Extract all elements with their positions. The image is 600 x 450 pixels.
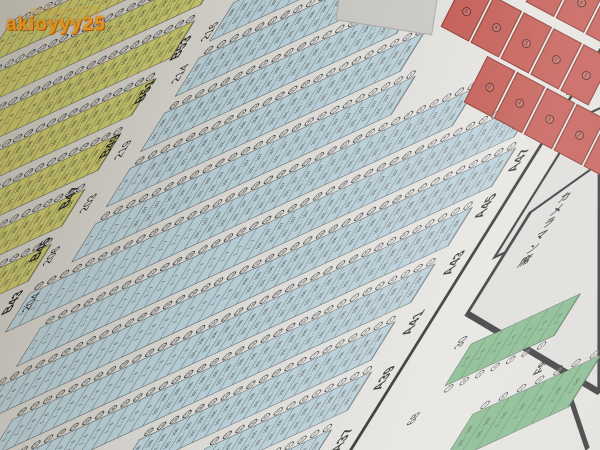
circled-column-number: 3 bbox=[543, 112, 555, 124]
circled-column-number: 5 bbox=[484, 80, 496, 92]
circled-column-number: 4 bbox=[575, 0, 587, 8]
seat-cell: 101 ~ 108 bbox=[189, 0, 222, 10]
seat-range-text: 101 ~ 106 bbox=[125, 444, 144, 450]
watermark: akioyyy25 bbox=[6, 14, 106, 36]
circled-column-number: 1 bbox=[580, 69, 592, 81]
circled-column-number: 3 bbox=[520, 37, 532, 49]
seat-range-text: 101 ~ 108 bbox=[196, 0, 215, 1]
circled-column-number: 4 bbox=[514, 96, 526, 108]
block-label-A41: A41 bbox=[398, 307, 430, 340]
circled-column-number: 2 bbox=[550, 53, 562, 65]
block-label-A45: A45 bbox=[470, 190, 502, 223]
circled-column-number: 5 bbox=[460, 5, 472, 17]
circled-column-number: 4 bbox=[490, 21, 502, 33]
circled-column-number: 2 bbox=[573, 128, 585, 140]
seating-map-photo: 5678910111213141516171819202122232425262… bbox=[0, 0, 600, 450]
